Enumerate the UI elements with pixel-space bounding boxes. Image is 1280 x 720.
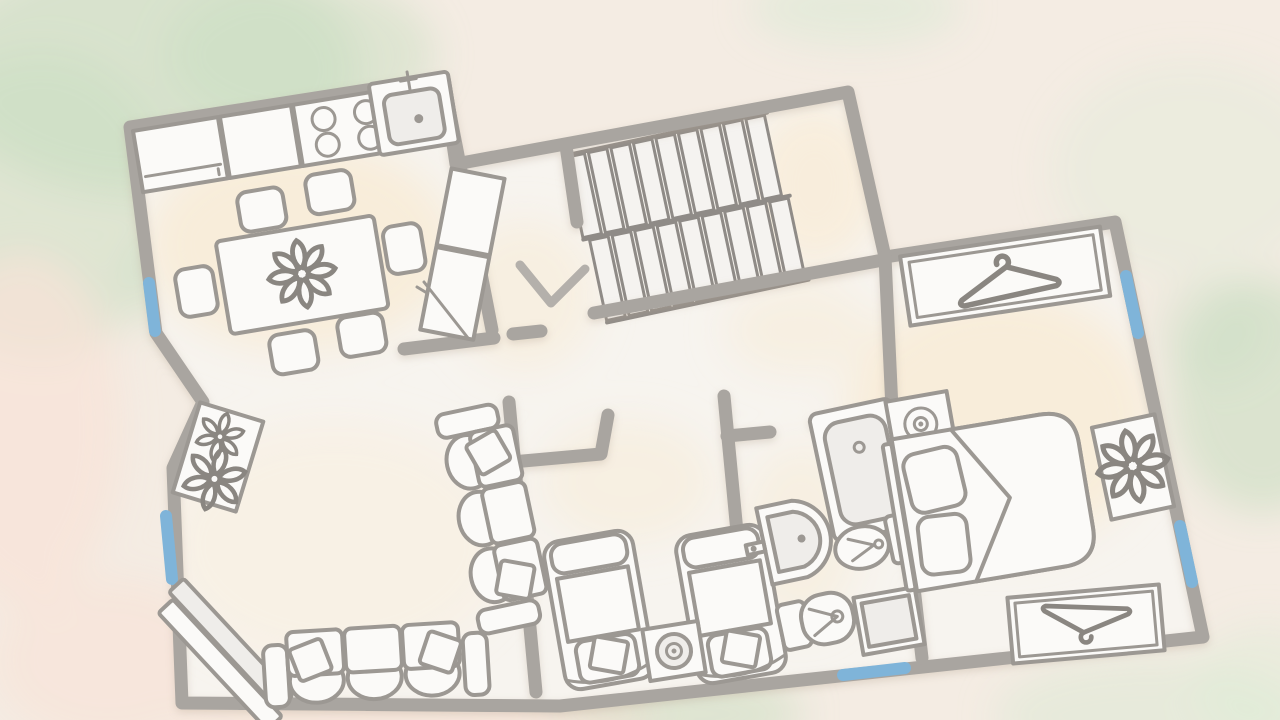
refrigerator bbox=[133, 117, 228, 192]
double-bed bbox=[882, 409, 1099, 593]
window-living-left bbox=[166, 516, 172, 579]
hall-south-wall-stub bbox=[513, 331, 541, 334]
window-kitchen-left bbox=[149, 283, 155, 331]
shower-tray bbox=[853, 587, 924, 655]
side-table bbox=[642, 621, 705, 681]
base-cabinet bbox=[220, 105, 301, 178]
dining-chair bbox=[304, 169, 356, 216]
dining-chair bbox=[382, 222, 427, 276]
screenshot-root bbox=[0, 0, 1280, 720]
dining-chair bbox=[236, 186, 288, 233]
dining-chair bbox=[268, 329, 320, 376]
pillow bbox=[917, 513, 972, 576]
window-bathroom-bottom bbox=[843, 668, 905, 675]
bathroom-west-stub bbox=[727, 432, 770, 436]
pillow bbox=[901, 444, 968, 515]
floor-plan bbox=[0, 0, 1280, 720]
wardrobe-bottom bbox=[1007, 585, 1164, 664]
dining-chair bbox=[174, 265, 219, 319]
dining-chair bbox=[336, 311, 388, 358]
